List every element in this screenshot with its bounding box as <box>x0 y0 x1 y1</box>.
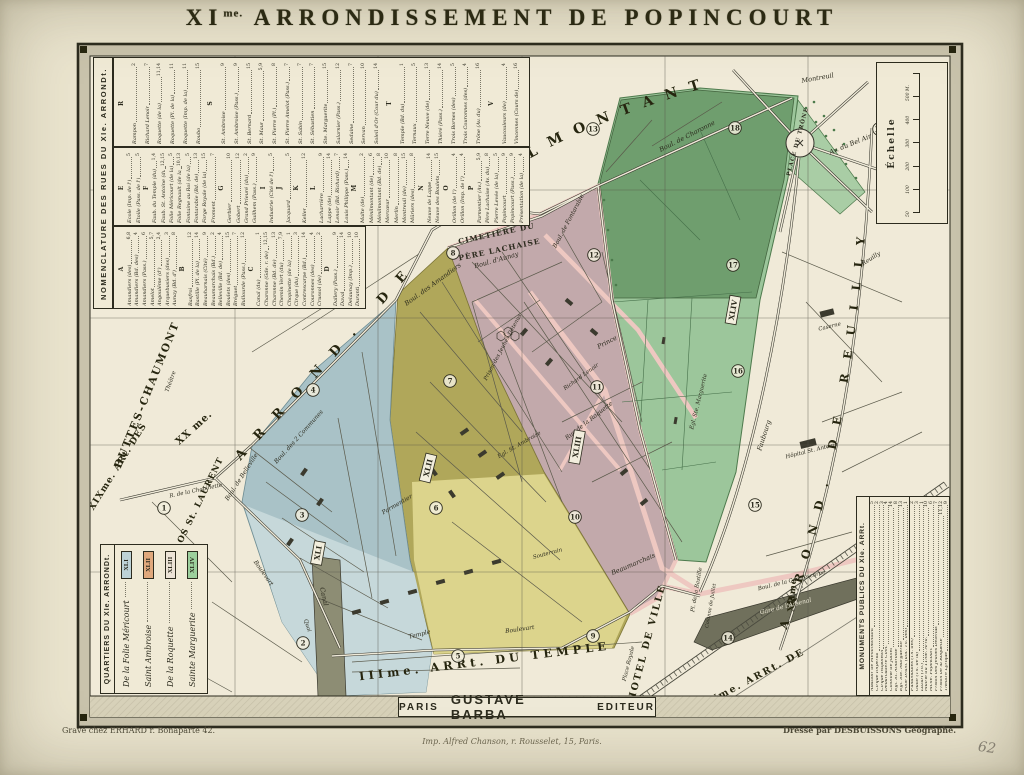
street-entry: Aunay (Bd. d')8 <box>172 232 178 306</box>
street-entry: Montreuil (de)15 <box>402 153 408 223</box>
quartier-legend-row: Sainte MargueriteXLIV <box>181 545 203 693</box>
section-letter: C <box>249 232 255 306</box>
imprint-role: EDITEUR <box>597 702 655 713</box>
scale-box: Échelle 50100200300400500 M. <box>876 62 948 224</box>
monument-number-circle: 15 <box>749 499 762 512</box>
quartiers-legend: QUARTIERS DU XIe. ARRONDt. De la Folie M… <box>100 544 208 694</box>
section-letter: G <box>219 153 225 223</box>
nomenclature-band: EÉcole (Imp. de l')5Étoile (Pass. de l')… <box>113 147 530 226</box>
street-entry: Amandiers (Bd. des)4 <box>134 232 140 306</box>
monument-number-circle: 2 <box>297 637 310 650</box>
street-entry: Soleil d'Or (Cour du)14 <box>374 63 380 144</box>
monument-entry: Folie Dram. (anc. Th. des)1 <box>905 501 910 691</box>
monument-number-circle: 6 <box>430 502 443 515</box>
street-entry: Dallery (Pass.)9 <box>333 232 339 306</box>
quartier-legend-row: De la Folie MéricourtXLI <box>115 545 137 693</box>
section-letter: B <box>180 232 186 306</box>
author-credit: Dressé par DESBUISSONS Géographe. <box>783 725 956 735</box>
street-entry: St. Bernard15 <box>247 63 253 144</box>
street-entry: Popincourt9 <box>502 153 508 223</box>
street-entry: Richard Lenoir7 <box>145 63 151 144</box>
street-entry: St. Ambroise (Pass.)9 <box>234 63 240 144</box>
section-letter: V <box>489 63 495 144</box>
svg-text:11: 11 <box>592 382 602 391</box>
quartiers-legend-rows: De la Folie MéricourtXLISaint AmbroiseXL… <box>115 545 203 693</box>
engraver-credit: Gravé chez ERHARD r. Bonaparte 42. <box>62 726 215 735</box>
section-letter: D <box>325 232 331 306</box>
street-entry: Gerbier10 <box>227 153 233 223</box>
quartier-legend-row: Saint AmbroiseXLII <box>137 545 159 693</box>
street-entry: Rampon2 <box>132 63 138 144</box>
svg-text:6: 6 <box>434 503 439 512</box>
street-entry: Faub. du Temple (du)1,4 <box>152 153 158 223</box>
street-entry: Charonne (Bd. de)13 <box>272 232 278 306</box>
street-entry: Boulets (des)15 <box>226 232 232 306</box>
street-entry: Pierre Levée (de la)5 <box>494 153 500 223</box>
street-entry: Grand Prieuré (du)2 <box>244 153 250 223</box>
street-entry: Contrescarpe (Bd.)14 <box>302 232 308 306</box>
street-entry: Bréguet7 <box>233 232 239 306</box>
street-entry: Temple (Bd. du)1 <box>400 63 406 144</box>
street-entry: Trois Bornes (des)5 <box>451 63 457 144</box>
section-letter: N <box>419 153 425 223</box>
svg-text:15: 15 <box>750 500 760 509</box>
street-entry: Roquette (Pl. de la)11 <box>170 63 176 144</box>
street-entry: Forge Royale (de la)15 <box>202 153 208 223</box>
svg-text:17: 17 <box>728 260 738 269</box>
svg-text:16: 16 <box>733 366 743 375</box>
section-letter: E <box>119 153 125 223</box>
section-letter: F <box>144 153 150 223</box>
quartier-color-swatch: XLIII <box>165 551 176 579</box>
quartier-color-swatch: XLI <box>121 551 132 579</box>
monument-entry: Théâtre Lyrique9 <box>945 501 950 691</box>
street-entry: Amelot5,7 <box>150 232 156 306</box>
street-entry: Trône (Av. du)16 <box>476 63 482 144</box>
street-entry: Ste. Marguerite15 <box>323 63 329 144</box>
monument-number-circle: 11 <box>591 381 604 394</box>
section-letter: S <box>208 63 214 144</box>
street-entry: Présentation (de la)4 <box>519 153 525 223</box>
street-entry: Chemin Vert (du)7,9 <box>279 232 285 306</box>
street-entry: Angoulême (d')2,4 <box>157 232 163 306</box>
map-sheet: XIme. ARRONDISSEMENT DE POPINCOURT <box>0 0 1024 775</box>
street-entry: Bastille (Pl. de la)14 <box>195 232 201 306</box>
street-entry: Neuve de Lappe14 <box>427 153 433 223</box>
monument-number-circle: 18 <box>729 122 742 135</box>
street-entry: Belleville (Bd. de)4 <box>218 232 224 306</box>
street-entry: Malte (de)2 <box>360 153 366 223</box>
street-entry: Orillon (de l')4 <box>452 153 458 223</box>
street-entry: Fontarabie (Bd. de)13 <box>194 153 200 223</box>
street-entry: Père Lachaise (Av. du)8 <box>485 153 491 223</box>
monument-number-circle: 9 <box>587 630 600 643</box>
street-entry: Amandiers (Pass.)6 <box>142 232 148 306</box>
svg-text:4: 4 <box>311 385 316 394</box>
scale-label: Échelle <box>887 63 897 223</box>
street-entry: Chopinette (de la)1 <box>287 232 293 306</box>
street-entry: Folie Regnault (de la)10,13 <box>177 153 183 223</box>
monument-number-circle: 12 <box>588 249 601 262</box>
street-entry: Roubo15 <box>196 63 202 144</box>
svg-text:18: 18 <box>730 123 740 132</box>
quartier-color-swatch: XLII <box>143 551 154 579</box>
street-entry: Froment7 <box>211 153 217 223</box>
svg-text:3: 3 <box>300 510 305 519</box>
street-entry: Neuve des Boulets15 <box>435 153 441 223</box>
street-entry: Gobert12 <box>236 153 242 223</box>
svg-text:10: 10 <box>570 512 580 521</box>
section-letter: K <box>294 153 300 223</box>
monument-number-circle: 5 <box>452 650 465 663</box>
street-entry: Louis Philippe (Pass.)14 <box>344 153 350 223</box>
quartiers-legend-title: QUARTIERS DU XIe. ARRONDt. <box>101 545 115 693</box>
scale-tick: 400 <box>913 97 919 120</box>
section-letter: I <box>261 153 267 223</box>
scale-tick: 300 <box>913 120 919 143</box>
street-entry: Lappe (de)14 <box>327 153 333 223</box>
street-entry: Arquebusiers (des)3 <box>165 232 171 306</box>
monument-number-circle: 10 <box>569 511 582 524</box>
street-entry: Roquette (Imp. de la)11 <box>183 63 189 144</box>
monuments-column: Funambules (Th. des)2Gaîté (Th. de la)3L… <box>910 497 950 695</box>
section-letter: T <box>387 63 393 144</box>
street-entry: Crussol (de)2 <box>317 232 323 306</box>
monument-number-circle: 1 <box>158 502 171 515</box>
section-letter: M <box>352 153 358 223</box>
street-entry: St. Sébastien7 <box>310 63 316 144</box>
street-entry: St. Sabin7 <box>298 63 304 144</box>
street-entry: Ménilmontant (Bd. de)8 <box>377 153 383 223</box>
section-letter: R <box>119 63 125 144</box>
street-entry: Vaucouleurs (de)4 <box>502 63 508 144</box>
street-entry: Sedaine7 <box>349 63 355 144</box>
street-entry: Orillon (Imp. de l')4 <box>460 153 466 223</box>
street-entry: Couronnes (des)4 <box>310 232 316 306</box>
street-entry: Folie Méricourt (de la)5 <box>169 153 175 223</box>
street-entry: Salarnier (Pass.)12 <box>336 63 342 144</box>
street-entry: Popincourt (Pass.)9 <box>510 153 516 223</box>
monument-number-circle: 4 <box>307 384 320 397</box>
svg-text:12: 12 <box>589 250 599 259</box>
street-entry: Terre Neuve (de)13 <box>425 63 431 144</box>
section-letter: O <box>444 153 450 223</box>
street-entry: Cirque (du)3 <box>294 232 300 306</box>
svg-text:5: 5 <box>456 651 461 660</box>
street-entry: Canal (du)1 <box>256 232 262 306</box>
monument-number-circle: 17 <box>727 259 740 272</box>
street-entry: Keller12 <box>302 153 308 223</box>
street-entry: Mercœur10 <box>385 153 391 223</box>
monuments-column: Abattoir de Ménilmontant5Cirque Impérial… <box>870 497 910 695</box>
street-entry: Merlin8 <box>394 153 400 223</box>
street-entry: Faub. St. Antoine (du)12,15 <box>161 153 167 223</box>
street-entry: Daval14 <box>340 232 346 306</box>
nomenclature-band: RRampon2Richard Lenoir7Roquette (de la)1… <box>113 57 530 147</box>
street-entry: Thiéré (Pass.)14 <box>438 63 444 144</box>
street-entry: Beaumarchais (Bd.)2 <box>211 232 217 306</box>
quartier-legend-row: De la RoquetteXLIII <box>159 545 181 693</box>
quartier-color-swatch: XLIV <box>187 551 198 579</box>
street-entry: Mûriers (des)8 <box>410 153 416 223</box>
street-entry: Guilhem (Pass.)9 <box>252 153 258 223</box>
nomenclature-title-strip: NOMENCLATURE DES RUES DU XIe. ARRONDt. <box>93 57 113 309</box>
monument-number-circle: 7 <box>444 375 457 388</box>
street-entry: Trois Couronnes (des)4 <box>463 63 469 144</box>
street-entry: Amandiers (des)6,8 <box>127 232 133 306</box>
scale-bar: 50100200300400500 M. <box>913 73 920 213</box>
street-entry: Ternaux5 <box>412 63 418 144</box>
section-letter: J <box>277 153 283 223</box>
street-entry: Beauharnais (Cité)9 <box>203 232 209 306</box>
svg-text:13: 13 <box>588 124 598 133</box>
street-entry: Jacquard5 <box>286 153 292 223</box>
printer-credit: Imp. Alfred Chanson, r. Rousselet, 15, P… <box>0 737 1024 746</box>
svg-text:2: 2 <box>301 638 306 647</box>
handwritten-note: 62 <box>977 739 997 757</box>
monument-number-circle: 13 <box>587 123 600 136</box>
svg-text:14: 14 <box>723 633 733 642</box>
svg-text:8: 8 <box>451 248 456 257</box>
street-entry: Basfroi12 <box>188 232 194 306</box>
section-letter: L <box>311 153 317 223</box>
svg-text:7: 7 <box>448 376 453 385</box>
street-entry: Duranti10 <box>355 232 361 306</box>
monuments-columns: Abattoir de Ménilmontant5Cirque Impérial… <box>870 497 950 695</box>
section-letter: A <box>119 232 125 306</box>
monuments-panel: MONUMENTS PUBLICS DU XIe. ARRt. Abattoir… <box>856 496 950 696</box>
monument-number-circle: 14 <box>722 632 735 645</box>
monument-number-circle: 8 <box>447 247 460 260</box>
street-entry: Parmentier (Av.)5,9 <box>477 153 483 223</box>
scale-tick: 500 M. <box>913 73 919 97</box>
monument-number-circle: 3 <box>296 509 309 522</box>
street-entry: St. Maur5,9 <box>259 63 265 144</box>
street-entry: Charonne (Gde. r. de)12,15 <box>264 232 270 306</box>
section-letter: P <box>469 153 475 223</box>
street-entry: Lenoir (Bd. Richard)7 <box>335 153 341 223</box>
imprint-publisher: GUSTAVE BARBA <box>451 692 585 722</box>
street-entry: Lacharrière9 <box>319 153 325 223</box>
monuments-title: MONUMENTS PUBLICS DU XIe. ARRt. <box>857 497 870 695</box>
street-entry: Étoile (Pass. de l')5 <box>136 153 142 223</box>
monument-number-circle: 16 <box>732 365 745 378</box>
street-entry: Vincennes (Cours de)16 <box>514 63 520 144</box>
street-entry: Ménilmontant (de)6 <box>369 153 375 223</box>
publisher-imprint: PARIS GUSTAVE BARBA EDITEUR <box>398 697 656 717</box>
nomenclature-band: AAmandiers (des)6,8Amandiers (Bd. des)4A… <box>113 226 366 309</box>
scale-tick: 50 <box>913 190 919 213</box>
street-entry: Industrie (Cité de l')5 <box>269 153 275 223</box>
svg-text:9: 9 <box>591 631 596 640</box>
nomenclature-title: NOMENCLATURE DES RUES DU XIe. ARRONDt. <box>94 58 114 310</box>
scale-tick: 100 <box>913 167 919 190</box>
svg-text:1: 1 <box>162 503 167 512</box>
street-entry: Roquette (de la)11,14 <box>157 63 163 144</box>
scale-tick: 200 <box>913 143 919 166</box>
imprint-city: PARIS <box>399 702 439 713</box>
street-entry: Servan10 <box>361 63 367 144</box>
street-entry: St. Ambroise9 <box>221 63 227 144</box>
street-entry: Bullourde (Pass.)12 <box>241 232 247 306</box>
street-entry: École (Imp. de l')5 <box>127 153 133 223</box>
street-entry: Fontaine au Roi (de la)5 <box>186 153 192 223</box>
street-entry: St. Pierre (Pl.)8 <box>272 63 278 144</box>
street-entry: St. Pierre Amelot (Pass.)7 <box>285 63 291 144</box>
street-entry: Delaunay (Imp.)10 <box>348 232 354 306</box>
